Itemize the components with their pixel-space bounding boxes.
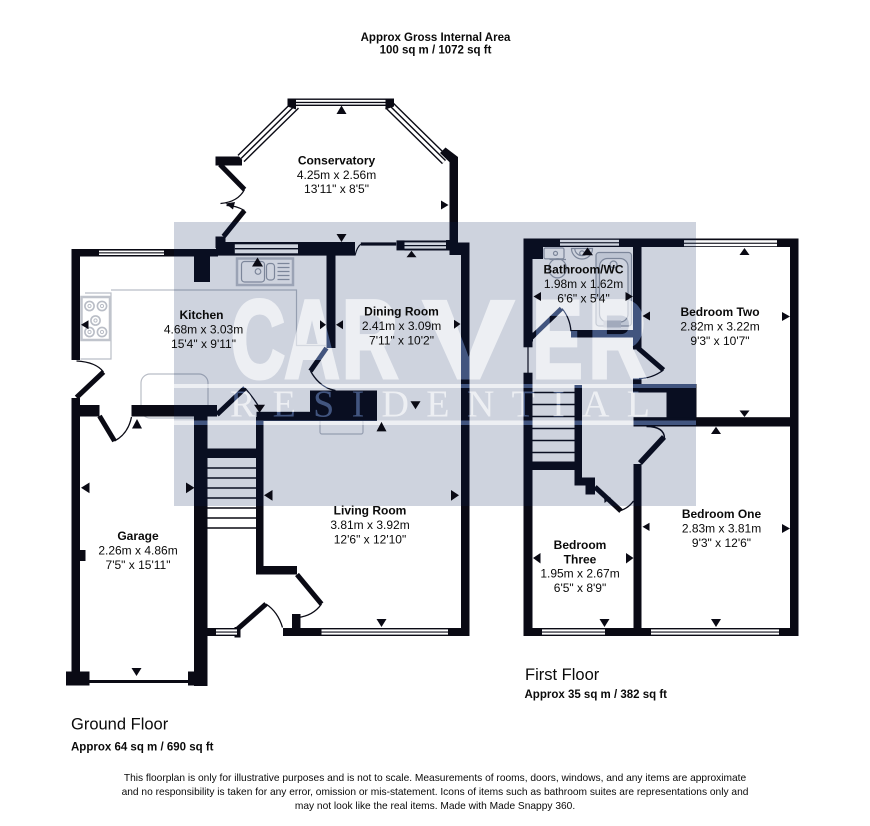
svg-text:Conservatory: Conservatory [298,154,376,168]
svg-text:Kitchen: Kitchen [179,308,223,322]
svg-text:9'3" x 12'6": 9'3" x 12'6" [692,536,751,550]
svg-text:Garage: Garage [117,529,159,543]
svg-text:Three: Three [564,552,597,566]
svg-text:Approx 64 sq m / 690 sq ft: Approx 64 sq m / 690 sq ft [71,742,214,754]
svg-text:6'6" x 5'4": 6'6" x 5'4" [557,291,609,305]
svg-text:7'5" x 15'11": 7'5" x 15'11" [106,558,171,572]
svg-text:Bedroom: Bedroom [554,538,607,552]
svg-text:Bathroom/WC: Bathroom/WC [544,263,624,277]
svg-text:2.82m x 3.22m: 2.82m x 3.22m [680,320,759,334]
svg-text:15'4" x 9'11": 15'4" x 9'11" [171,337,236,351]
svg-text:7'11" x 10'2": 7'11" x 10'2" [369,333,434,347]
svg-text:Living Room: Living Room [334,504,407,518]
svg-text:First Floor: First Floor [525,666,600,684]
svg-text:1.98m x 1.62m: 1.98m x 1.62m [544,277,623,291]
svg-text:6'5" x 8'9": 6'5" x 8'9" [554,581,606,595]
svg-text:9'3" x 10'7": 9'3" x 10'7" [690,334,749,348]
svg-text:Approx Gross Internal Area: Approx Gross Internal Area [361,32,511,44]
svg-text:This floorplan is only for ill: This floorplan is only for illustrative … [124,773,747,784]
svg-text:Bedroom One: Bedroom One [682,507,762,521]
svg-text:and no responsibility is taken: and no responsibility is taken for any e… [122,787,749,798]
svg-text:may not look like the real ite: may not look like the real items. Made w… [295,801,575,812]
svg-text:2.26m x 4.86m: 2.26m x 4.86m [98,544,177,558]
svg-text:4.25m x 2.56m: 4.25m x 2.56m [297,168,376,182]
svg-text:13'11" x 8'5": 13'11" x 8'5" [304,182,369,196]
svg-text:RESIDENTIAL: RESIDENTIAL [230,384,650,426]
svg-text:Bedroom Two: Bedroom Two [680,305,759,319]
svg-text:Ground Floor: Ground Floor [71,716,169,734]
svg-text:100 sq m / 1072 sq ft: 100 sq m / 1072 sq ft [380,45,492,57]
svg-text:Dining Room: Dining Room [364,305,439,319]
svg-text:4.68m x 3.03m: 4.68m x 3.03m [164,323,243,337]
svg-text:Approx 35 sq m / 382 sq ft: Approx 35 sq m / 382 sq ft [525,689,668,701]
svg-text:12'6" x 12'10": 12'6" x 12'10" [334,532,407,546]
svg-text:3.81m x 3.92m: 3.81m x 3.92m [330,518,409,532]
svg-text:2.41m x 3.09m: 2.41m x 3.09m [362,319,441,333]
svg-text:2.83m x 3.81m: 2.83m x 3.81m [682,522,761,536]
svg-text:1.95m x 2.67m: 1.95m x 2.67m [540,567,619,581]
